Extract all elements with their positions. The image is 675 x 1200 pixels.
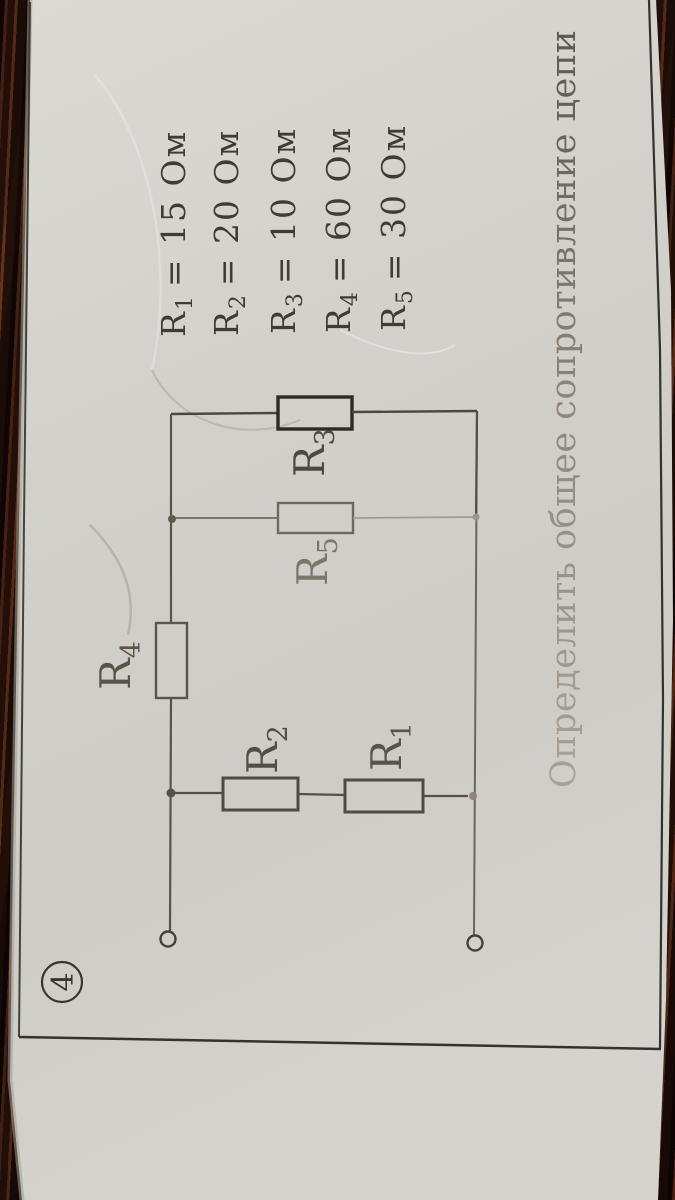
junction-dot-left-bottom <box>167 789 176 798</box>
wire-left-rail-lower <box>170 698 171 931</box>
wire-top-right <box>352 411 477 412</box>
junction-dot-right-middle <box>473 514 480 521</box>
wire-right-rail-dark-top <box>476 411 477 520</box>
junction-dot-left-middle <box>168 515 176 523</box>
task-text: Определить общее сопротивление цепи <box>544 30 584 788</box>
wire-top-left <box>171 413 278 414</box>
junction-dot-right-bottom <box>469 792 477 800</box>
problem-number: 4 <box>46 972 81 991</box>
wire-bottom-middle <box>298 794 345 795</box>
photo-of-problem-card: 4 R1= 15 Ом R2= 20 Ом R3= 10 Ом R4= 60 О… <box>0 0 675 1200</box>
problem-card-photo: 4 R1= 15 Ом R2= 20 Ом R3= 10 Ом R4= 60 О… <box>0 0 675 1200</box>
wire-middle-right <box>353 517 474 518</box>
